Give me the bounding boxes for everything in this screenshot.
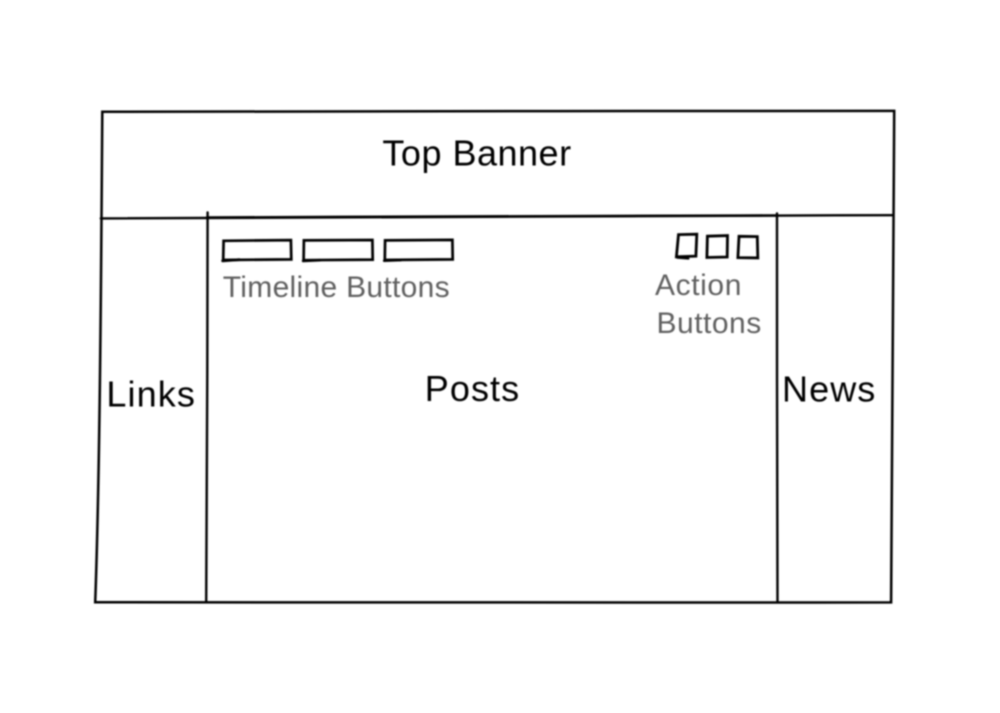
svg-text:Timeline Buttons: Timeline Buttons — [223, 271, 450, 304]
svg-text:Posts: Posts — [425, 368, 521, 409]
svg-text:Links: Links — [106, 374, 196, 415]
svg-text:Action: Action — [655, 269, 742, 302]
svg-text:Top Banner: Top Banner — [382, 133, 571, 174]
svg-text:Buttons: Buttons — [657, 307, 762, 340]
svg-text:News: News — [782, 369, 876, 410]
